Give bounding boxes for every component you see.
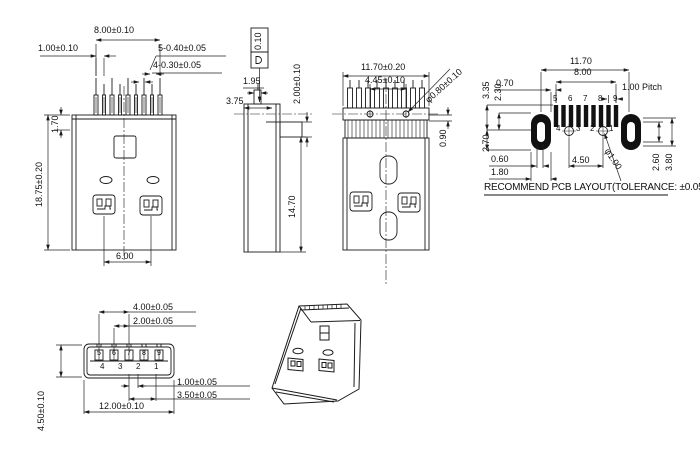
front-view <box>40 40 226 266</box>
pcb-pad-label: 4 <box>556 125 560 133</box>
dim-front-pin-depth: 1.70 <box>51 115 60 133</box>
pcb-pad-label: 9 <box>613 95 617 103</box>
pcb-pad-label: 6 <box>568 95 572 103</box>
dim-bottom-200: 2.00±0.05 <box>133 317 173 326</box>
side-view <box>234 28 312 252</box>
dim-bottom-350: 3.50±0.05 <box>177 391 217 400</box>
dim-pcb-270: 2.70 <box>482 134 491 152</box>
dim-rear-dimple-span: 4.45±0.10 <box>365 76 405 85</box>
dim-pcb-pad-width: 1.80 <box>491 168 509 177</box>
dim-bottom-100: 1.00±0.05 <box>177 378 217 387</box>
dim-front-pin-span: 8.00±0.10 <box>94 26 134 35</box>
dim-pcb-slot-width: 0.60 <box>491 155 509 164</box>
isometric-view <box>272 304 361 404</box>
technical-drawing: 8.00±0.10 1.00±0.10 5-0.40±0.05 4-0.30±0… <box>0 0 700 456</box>
dim-bottom-width: 12.00±0.10 <box>99 402 144 411</box>
bottom-pin-label: 6 <box>112 350 116 357</box>
dim-front-latch-span: 6.00 <box>116 252 134 261</box>
drawing-linework <box>0 0 700 456</box>
pcb-pad-label: 1 <box>609 125 613 133</box>
bottom-pin-label: 8 <box>142 350 146 357</box>
latch-window-left <box>350 192 372 211</box>
dim-pcb-hole-span: 4.50 <box>572 156 590 165</box>
dim-side-length: 14.70 <box>288 195 297 218</box>
iso-window-left <box>288 358 303 371</box>
dim-side-thickness: 3.75 <box>226 97 244 106</box>
dim-pcb-380: 3.80 <box>665 153 674 171</box>
bottom-pin-label: 1 <box>154 363 158 371</box>
dim-pcb-width: 11.70 <box>570 57 592 66</box>
latch-window-left <box>93 195 115 214</box>
dim-side-flange: 2.00±0.10 <box>293 64 302 104</box>
bottom-pin-label: 3 <box>118 363 122 371</box>
front-pins <box>94 78 162 115</box>
pcb-pad-label: 5 <box>553 95 557 103</box>
latch-window-right <box>140 196 162 215</box>
pcb-layout-title: RECOMMEND PCB LAYOUT(TOLERANCE: ±0.05) <box>484 183 700 193</box>
bottom-pin-label: 4 <box>100 363 104 371</box>
bottom-pin-label: 7 <box>127 350 131 357</box>
bottom-pin-label: 2 <box>136 363 140 371</box>
dim-side-pin: 1.95 <box>243 77 261 86</box>
latch-window-right <box>398 193 420 212</box>
dim-bottom-400: 4.00±0.05 <box>133 303 173 312</box>
fcf-tolerance-value: 0.10 <box>254 32 263 50</box>
dim-rear-band: 0.90 <box>439 129 448 147</box>
iso-window-right <box>319 359 334 372</box>
dim-pcb-260: 2.60 <box>652 153 661 171</box>
bottom-pin-label: 9 <box>157 350 161 357</box>
dim-front-pin-width-5: 5-0.40±0.05 <box>158 44 206 53</box>
dim-pcb-230: 2.30 <box>494 83 503 101</box>
pcb-pad-label: 3 <box>576 125 580 133</box>
dim-bottom-height: 4.50±0.10 <box>37 391 46 431</box>
bottom-view <box>56 312 250 414</box>
dim-rear-width: 11.70±0.20 <box>361 63 405 72</box>
dim-pcb-pad-span: 8.00 <box>574 68 592 77</box>
pcb-pad-label: 7 <box>583 95 587 103</box>
pcb-pad-label: 8 <box>598 95 602 103</box>
dim-pcb-335: 3.35 <box>482 81 491 99</box>
bottom-pin-label: 5 <box>97 350 101 357</box>
dim-front-pin-width-4: 4-0.30±0.05 <box>153 61 201 70</box>
center-hole <box>114 136 136 158</box>
rear-view <box>332 69 452 284</box>
pcb-pad-label: 2 <box>590 125 594 133</box>
dim-front-pin-pitch: 1.00±0.10 <box>38 44 78 53</box>
dim-front-body-height: 18.75±0.20 <box>35 162 44 207</box>
dim-pcb-pitch: 1.00 Pitch <box>622 83 662 92</box>
